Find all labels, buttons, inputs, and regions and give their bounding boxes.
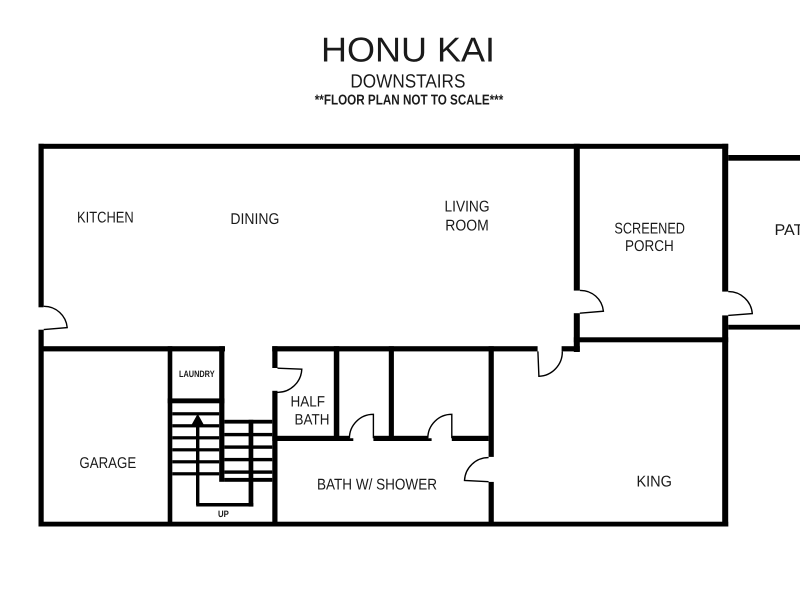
svg-text:UP: UP bbox=[218, 509, 229, 519]
svg-text:ROOM: ROOM bbox=[445, 217, 489, 234]
svg-text:PATIO: PATIO bbox=[775, 222, 800, 239]
svg-text:SCREENED: SCREENED bbox=[614, 221, 685, 238]
svg-text:PORCH: PORCH bbox=[625, 238, 674, 255]
svg-text:KING: KING bbox=[636, 474, 672, 491]
svg-text:KITCHEN: KITCHEN bbox=[77, 209, 134, 226]
svg-text:LAUNDRY: LAUNDRY bbox=[179, 369, 215, 379]
svg-text:**FLOOR PLAN NOT TO SCALE***: **FLOOR PLAN NOT TO SCALE*** bbox=[315, 93, 504, 109]
svg-text:DINING: DINING bbox=[230, 211, 279, 228]
svg-text:BATH W/ SHOWER: BATH W/ SHOWER bbox=[317, 476, 437, 493]
svg-text:HALF: HALF bbox=[291, 394, 326, 411]
svg-text:DOWNSTAIRS: DOWNSTAIRS bbox=[350, 72, 465, 93]
svg-text:GARAGE: GARAGE bbox=[79, 455, 136, 472]
svg-text:BATH: BATH bbox=[295, 412, 330, 429]
svg-text:HONU KAI: HONU KAI bbox=[321, 32, 495, 70]
svg-text:LIVING: LIVING bbox=[445, 199, 490, 216]
